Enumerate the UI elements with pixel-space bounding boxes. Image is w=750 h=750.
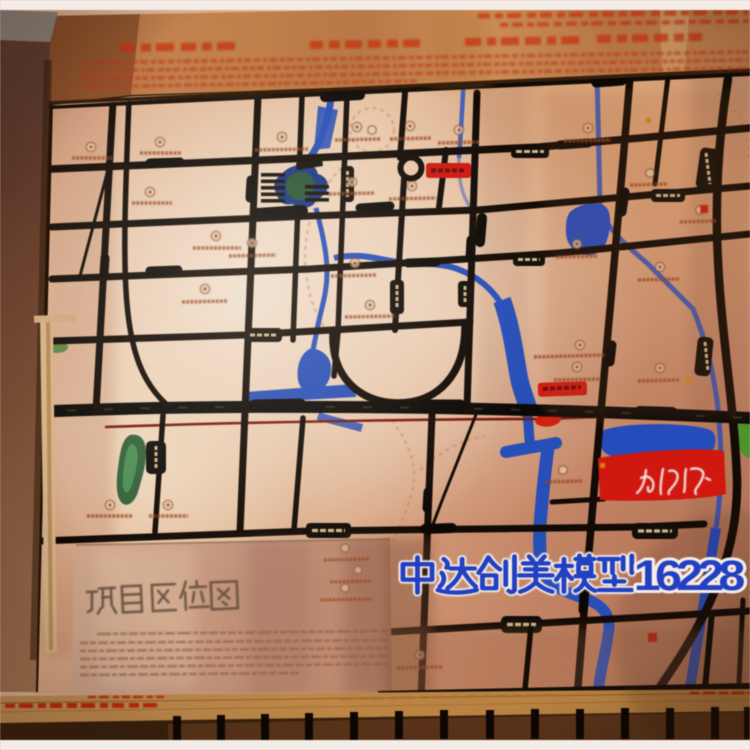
svg-text:16228: 16228 <box>634 552 745 600</box>
